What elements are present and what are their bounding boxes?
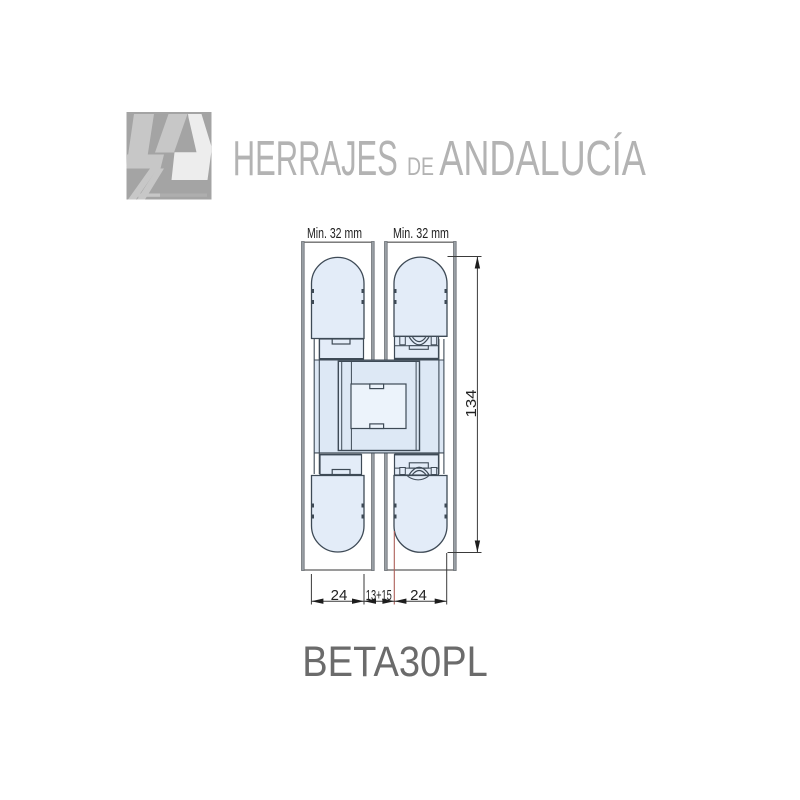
svg-text:24: 24 [410, 587, 427, 604]
svg-text:DE: DE [407, 153, 434, 181]
svg-text:ANDALUCÍA: ANDALUCÍA [439, 131, 646, 186]
svg-text:BETA30PL: BETA30PL [302, 638, 488, 686]
svg-text:134: 134 [463, 390, 480, 418]
svg-text:Min. 32 mm: Min. 32 mm [393, 226, 449, 242]
svg-text:Min. 32 mm: Min. 32 mm [307, 226, 362, 242]
svg-text:13+15: 13+15 [366, 587, 392, 604]
svg-text:HERRAJES: HERRAJES [233, 131, 398, 186]
svg-text:24: 24 [331, 587, 348, 604]
